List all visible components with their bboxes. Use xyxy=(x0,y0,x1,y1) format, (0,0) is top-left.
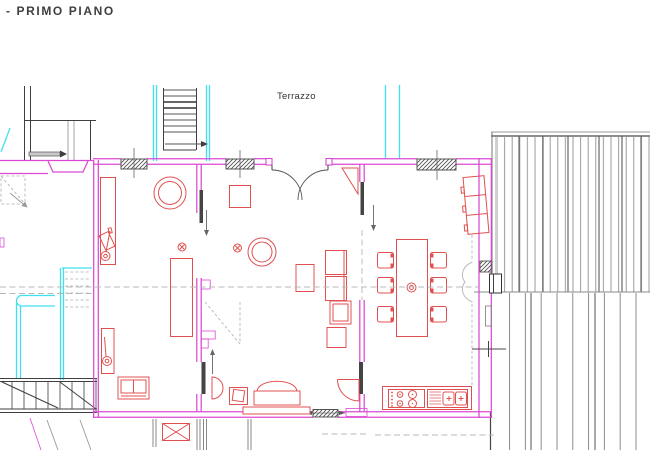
door-leaf xyxy=(361,182,365,215)
door-leaf xyxy=(200,190,204,223)
side-window xyxy=(486,306,492,326)
internal-stair-upper-treads xyxy=(65,272,91,307)
french-door xyxy=(266,159,332,201)
internal-stair-handrail xyxy=(16,268,92,380)
sofa-small xyxy=(118,377,149,399)
ceiling-light xyxy=(234,244,242,252)
round-armchair xyxy=(248,238,276,266)
dining-room-furniture xyxy=(378,176,489,385)
instrument-cabinet xyxy=(102,329,115,374)
living-room-furniture xyxy=(205,186,351,406)
ceiling-light xyxy=(178,243,186,251)
internal-stair-lower-flight xyxy=(0,379,97,413)
exterior-walls xyxy=(93,158,492,418)
closet-dashed xyxy=(1,176,28,208)
windows xyxy=(121,148,456,417)
left-apartment xyxy=(0,161,97,450)
corner-shelf xyxy=(342,168,358,194)
curved-sofa xyxy=(254,381,300,405)
direction-arrow-bar xyxy=(29,151,67,158)
interior-wall-right xyxy=(338,164,377,412)
door-swing-arrow-down xyxy=(371,225,376,231)
corner-fireplace xyxy=(338,380,360,402)
kitchen xyxy=(383,387,472,410)
ceiling-slope-dashes xyxy=(205,302,240,344)
flue-hatch xyxy=(480,261,492,272)
door-swing-arrow-down xyxy=(204,230,209,236)
plan-drawing xyxy=(0,0,650,450)
window-dining xyxy=(417,150,456,180)
door-leaf xyxy=(359,362,363,394)
door-leaf xyxy=(202,362,206,394)
sink xyxy=(428,390,468,408)
room-left-furniture xyxy=(99,177,192,399)
round-swivel-chair xyxy=(154,177,186,209)
door-swing-arrow-up xyxy=(210,349,215,355)
external-staircase xyxy=(154,85,210,161)
coffee-table xyxy=(296,265,314,292)
guitar-2 xyxy=(103,337,112,366)
sideboard xyxy=(460,176,489,235)
square-table xyxy=(230,186,251,208)
stove xyxy=(389,390,425,408)
half-round-chair xyxy=(212,377,223,399)
wall-niche xyxy=(462,262,472,302)
terrace-railing xyxy=(386,85,400,158)
window-center xyxy=(226,150,254,178)
hearth-bench xyxy=(243,407,310,414)
wardrobe xyxy=(101,178,116,265)
ceiling-light xyxy=(407,283,416,292)
sofa-two-seat xyxy=(326,251,347,301)
stool-table xyxy=(230,388,248,405)
window-bottom xyxy=(306,410,345,418)
dining-table xyxy=(397,240,428,337)
chimney xyxy=(490,274,502,293)
upper-left-structure xyxy=(1,86,96,160)
floor-plan-sheet: - PRIMO PIANO Terrazzo xyxy=(0,0,650,450)
shaft-crossed-box xyxy=(163,424,190,441)
window-left xyxy=(121,148,147,178)
armchair-b xyxy=(330,301,351,324)
desk xyxy=(171,259,193,337)
interior-wall-left xyxy=(197,164,215,412)
side-table xyxy=(327,328,346,348)
